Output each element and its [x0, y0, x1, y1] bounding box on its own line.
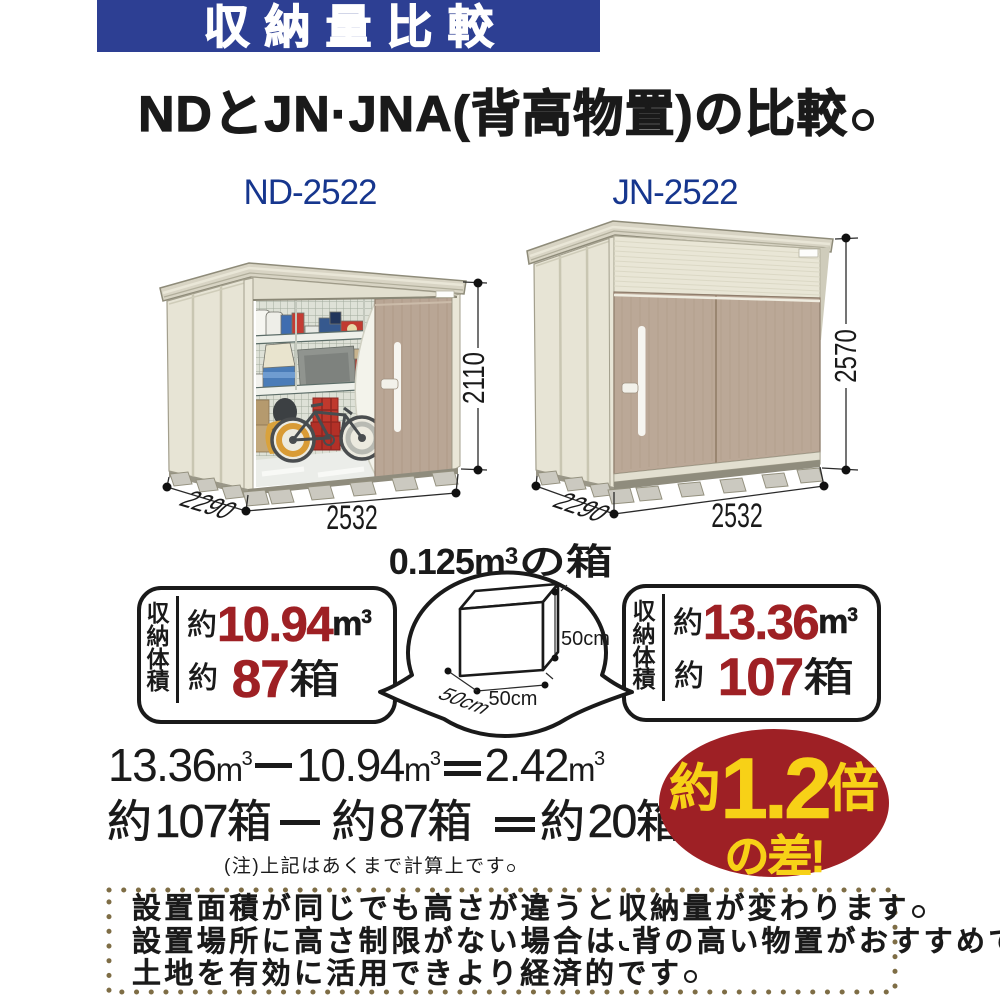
svg-text:2570: 2570: [828, 329, 863, 383]
svg-text:2110: 2110: [456, 352, 491, 404]
svg-text:2532: 2532: [326, 500, 377, 537]
svg-text:50cm: 50cm: [561, 628, 610, 650]
svg-text:2532: 2532: [711, 498, 762, 535]
